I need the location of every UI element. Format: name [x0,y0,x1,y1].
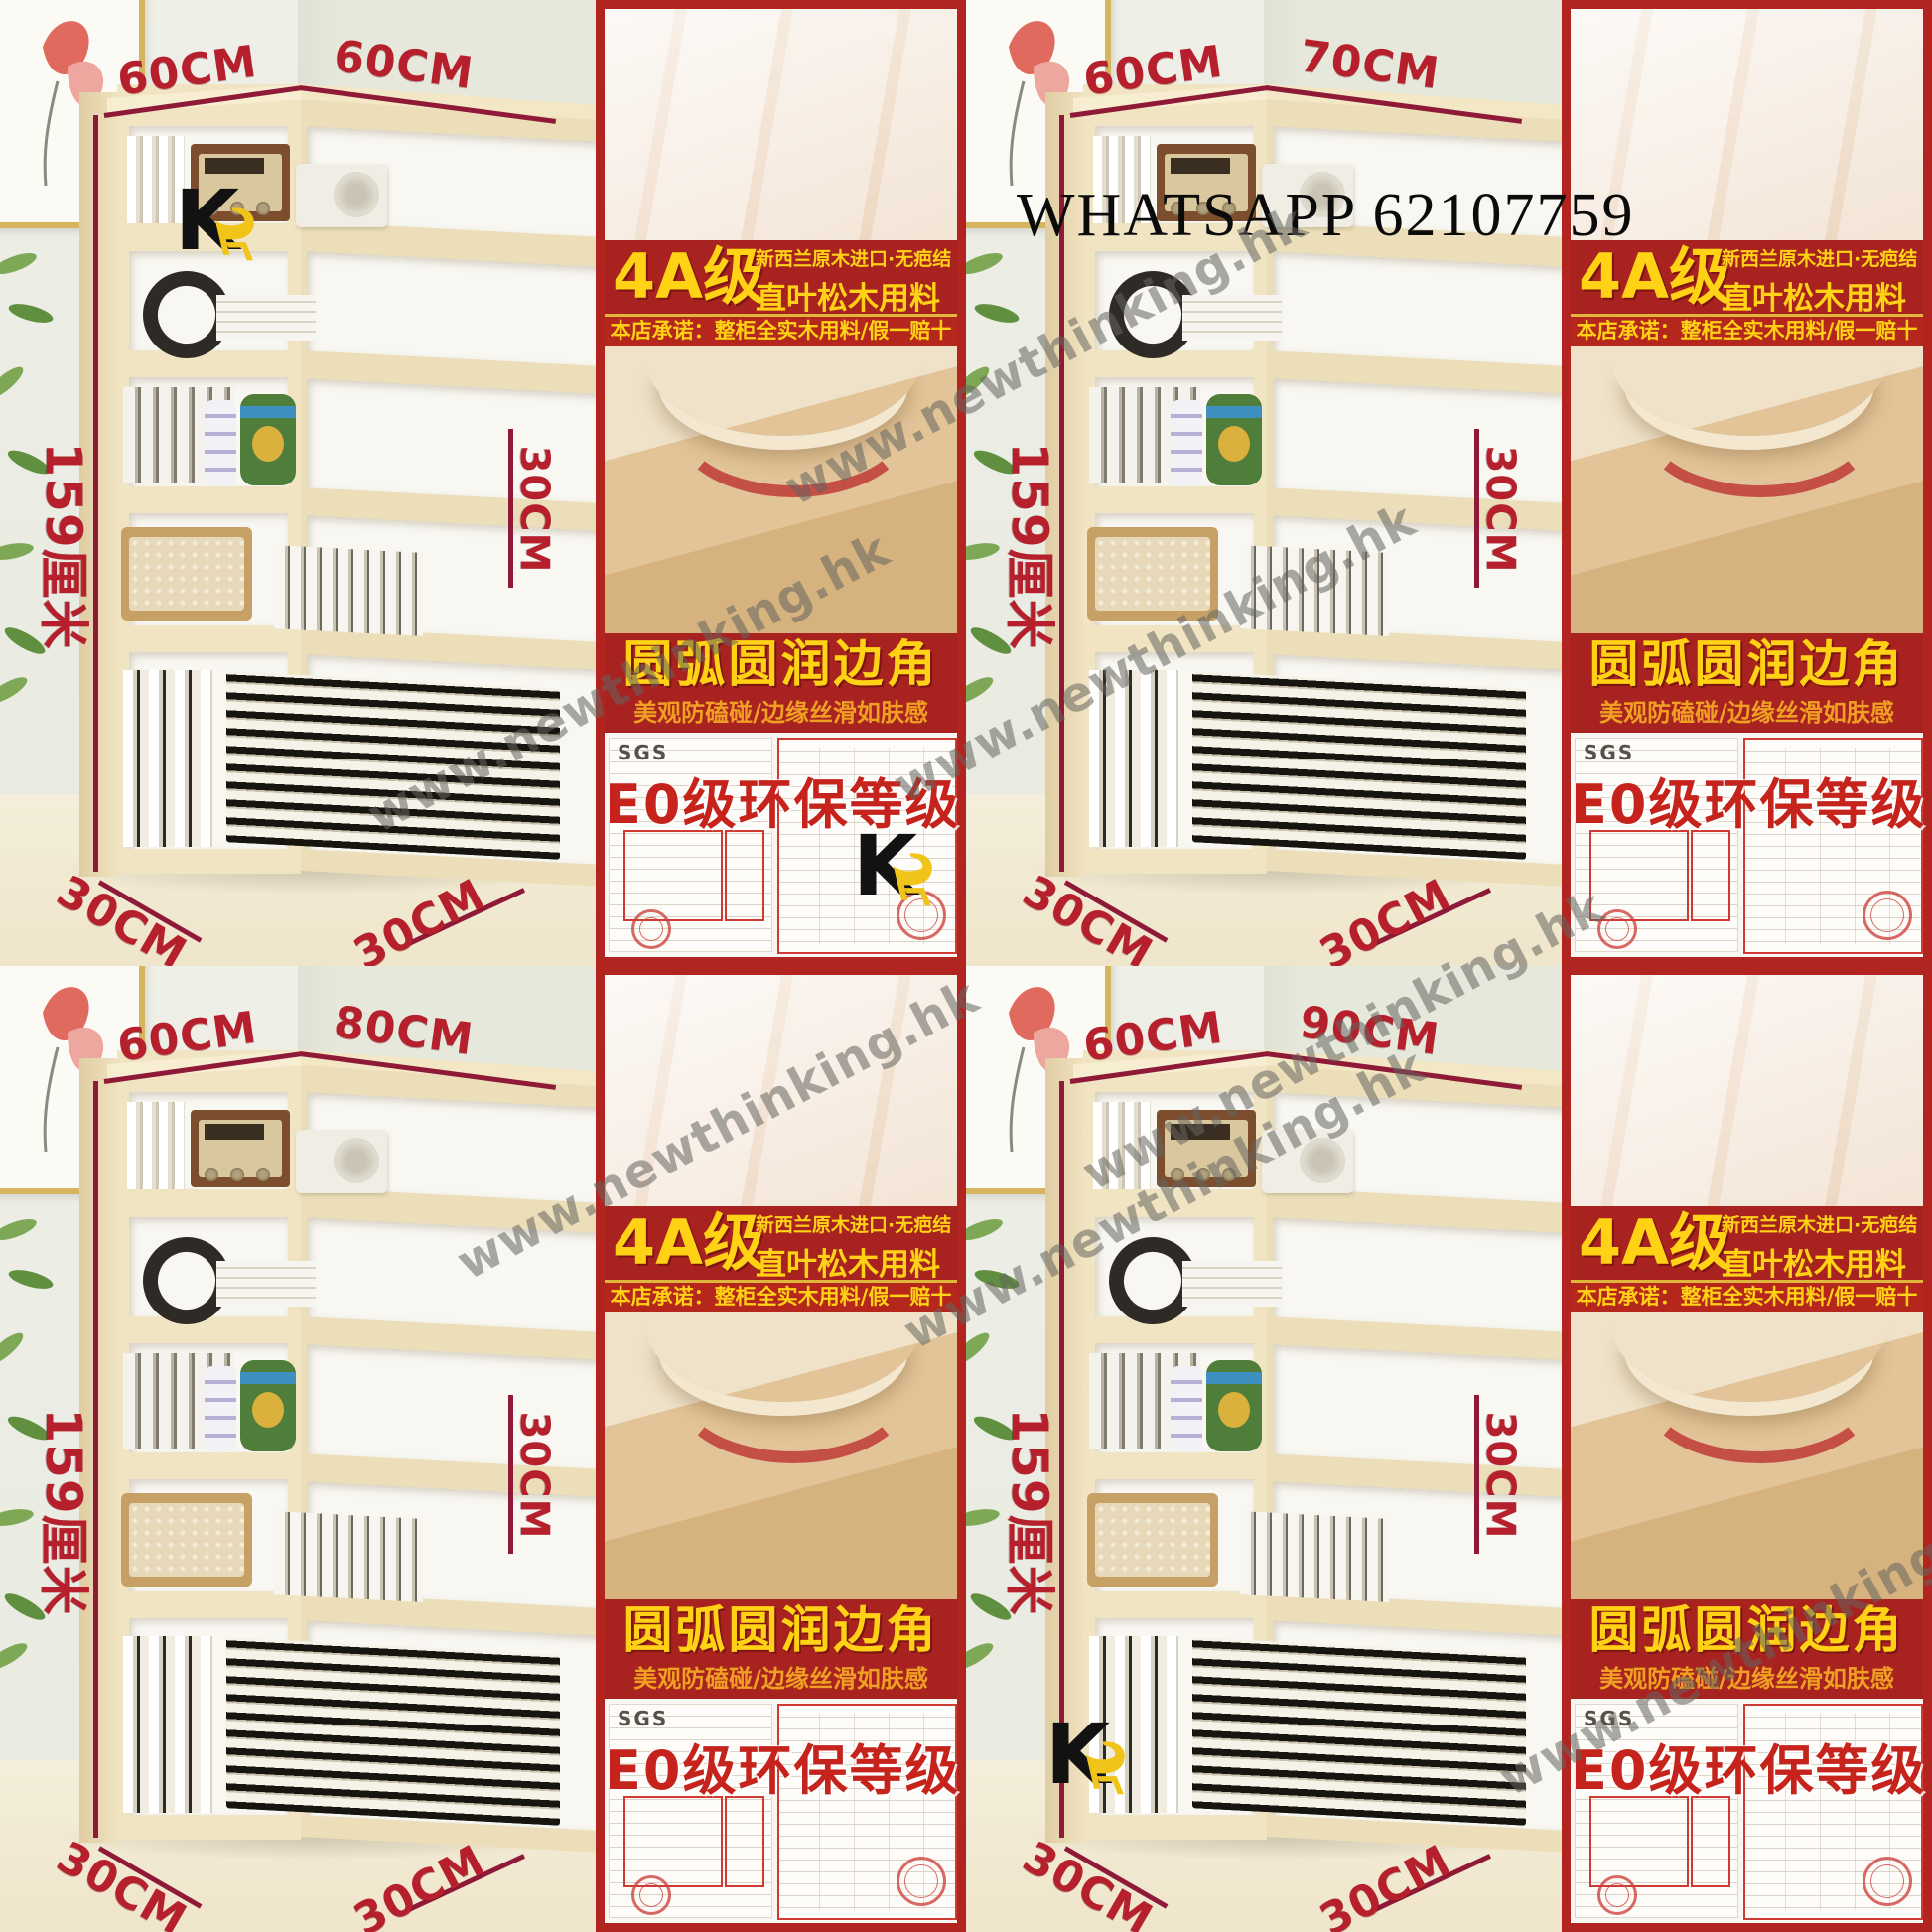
grade-banner: 4A级 新西兰原木进口·无疤结 直叶松木用料 [1571,1206,1923,1280]
product-scene: 60CM 60CM 159厘米 30CM 30CM 30CM K K [0,0,596,966]
stamp-icon [1863,1857,1912,1906]
edge-banner: 圆弧圆润边角 美观防磕碰/边缘丝滑如肤感 [1571,633,1923,733]
whatsapp-contact-overlay: WHATSAPP 62107759 [1017,181,1635,251]
white-speaker [296,1130,387,1193]
edge-title: 圆弧圆润边角 [605,1601,957,1659]
stamp-icon [631,909,671,949]
wood-plank-photo [1571,975,1923,1206]
grade-line2: 直叶松木用料 [756,1239,954,1284]
turtle-figure [1206,394,1262,485]
dimension-label-depth: 30CM [511,444,557,575]
turtle-figure [240,1360,296,1451]
dimension-label-depth: 30CM [1477,444,1523,575]
edge-title: 圆弧圆润边角 [1571,635,1923,693]
grade-banner: 4A级 新西兰原木进口·无疤结 直叶松木用料 [605,1206,957,1280]
red-arc-mark [1640,1322,1878,1463]
edge-subtitle: 美观防磕碰/边缘丝滑如肤感 [1571,693,1923,728]
robot-figure [205,400,236,485]
brand-logo: K [175,179,260,266]
chair-icon [205,205,262,262]
grade-line1: 新西兰原木进口·无疤结 [1722,244,1920,271]
grade-badge: 4A级 [613,242,764,312]
robot-figure [1171,400,1202,485]
rattan-speaker [121,1493,252,1587]
grade-badge: 4A级 [613,1208,764,1278]
grade-line1: 新西兰原木进口·无疤结 [756,244,954,271]
test-items-box [1589,1796,1689,1887]
dimension-label-height: 159厘米 [32,435,103,657]
quadrant-60CM x 90CM: 60CM 90CM 159厘米 30CM 30CM 30CM K K 4 [966,966,1932,1932]
stamp-icon [631,1875,671,1915]
grade-line2: 直叶松木用料 [756,273,954,318]
stamp-icon [897,1857,946,1906]
quadrant-60CM x 70CM: 60CM 70CM 159厘米 30CM 30CM 30CM K K 4 [966,0,1932,966]
corner-bookshelf [79,1050,556,1845]
books [274,545,423,636]
dimension-label-height: 159厘米 [32,1401,103,1623]
certificates-section: SGS E0级环保等级 K [1571,733,1923,957]
red-arc-mark [674,1322,912,1463]
turtle-figure [240,394,296,485]
magazine-stack [1192,671,1526,860]
quadrant-60CM x 80CM: 60CM 80CM 159厘米 30CM 30CM 30CM K K 4 [0,966,966,1932]
promise-banner: 本店承诺：整柜全实木用料/假一赔十 [1571,314,1923,346]
brand-logo: K [853,824,938,911]
eco-grade-title: E0级环保等级 [1571,760,1923,839]
robot-figure [205,1366,236,1451]
robot-figure [1171,1366,1202,1451]
promise-banner: 本店承诺：整柜全实木用料/假一赔十 [605,314,957,346]
result-column-box [725,830,764,921]
dimension-label-depth: 30CM [511,1410,557,1541]
ad-panel: 4A级 新西兰原木进口·无疤结 直叶松木用料 本店承诺：整柜全实木用料/假一赔十… [1562,966,1932,1932]
test-items-box [623,1796,723,1887]
grade-badge: 4A级 [1579,242,1730,312]
grade-line2: 直叶松木用料 [1722,273,1920,318]
rounded-edge-photo [605,1312,957,1599]
red-arc-mark [1640,356,1878,497]
ad-panel: 4A级 新西兰原木进口·无疤结 直叶松木用料 本店承诺：整柜全实木用料/假一赔十… [596,0,966,966]
dimension-label-depth: 30CM [1477,1410,1523,1541]
magazine-stack [226,1637,560,1826]
book-stack [1182,1261,1282,1307]
product-scene: 60CM 80CM 159厘米 30CM 30CM 30CM K K [0,966,596,1932]
books [123,1636,212,1813]
eco-grade-title: E0级环保等级 [605,1726,957,1805]
result-column-box [725,1796,764,1887]
grade-line2: 直叶松木用料 [1722,1239,1920,1284]
stamp-icon [1597,1875,1637,1915]
promise-banner: 本店承诺：整柜全实木用料/假一赔十 [1571,1280,1923,1312]
dimension-label-height: 159厘米 [998,435,1069,657]
books [1240,1511,1389,1602]
white-speaker [296,164,387,227]
grade-banner: 4A级 新西兰原木进口·无疤结 直叶松木用料 [605,240,957,314]
turtle-figure [1206,1360,1262,1451]
edge-subtitle: 美观防磕碰/边缘丝滑如肤感 [605,1659,957,1694]
book-stack [216,295,316,341]
books [123,670,212,847]
chair-icon [883,850,940,907]
book-stack [216,1261,316,1307]
test-items-box [1589,830,1689,921]
result-column-box [1691,830,1730,921]
dimension-label-height: 159厘米 [998,1401,1069,1623]
edge-banner: 圆弧圆润边角 美观防磕碰/边缘丝滑如肤感 [605,1599,957,1699]
product-ad-collage: 60CM 60CM 159厘米 30CM 30CM 30CM K K 4 [0,0,1932,1932]
test-items-box [623,830,723,921]
stamp-icon [1863,891,1912,940]
certificates-section: SGS E0级环保等级 K [605,1699,957,1923]
chair-icon [1075,1738,1133,1796]
grade-line1: 新西兰原木进口·无疤结 [756,1210,954,1237]
rattan-speaker [121,527,252,621]
wood-plank-photo [605,9,957,240]
brand-logo: K [1045,1713,1131,1800]
result-column-box [1691,1796,1730,1887]
books [127,1102,185,1189]
grade-badge: 4A级 [1579,1208,1730,1278]
rattan-speaker [1087,1493,1218,1587]
product-scene: 60CM 70CM 159厘米 30CM 30CM 30CM K K [966,0,1562,966]
radio [191,1110,290,1187]
books [274,1511,423,1602]
rounded-edge-photo [1571,346,1923,633]
ad-panel: 4A级 新西兰原木进口·无疤结 直叶松木用料 本店承诺：整柜全实木用料/假一赔十… [1562,0,1932,966]
grade-banner: 4A级 新西兰原木进口·无疤结 直叶松木用料 [1571,240,1923,314]
grade-line1: 新西兰原木进口·无疤结 [1722,1210,1920,1237]
magazine-stack [1192,1637,1526,1826]
